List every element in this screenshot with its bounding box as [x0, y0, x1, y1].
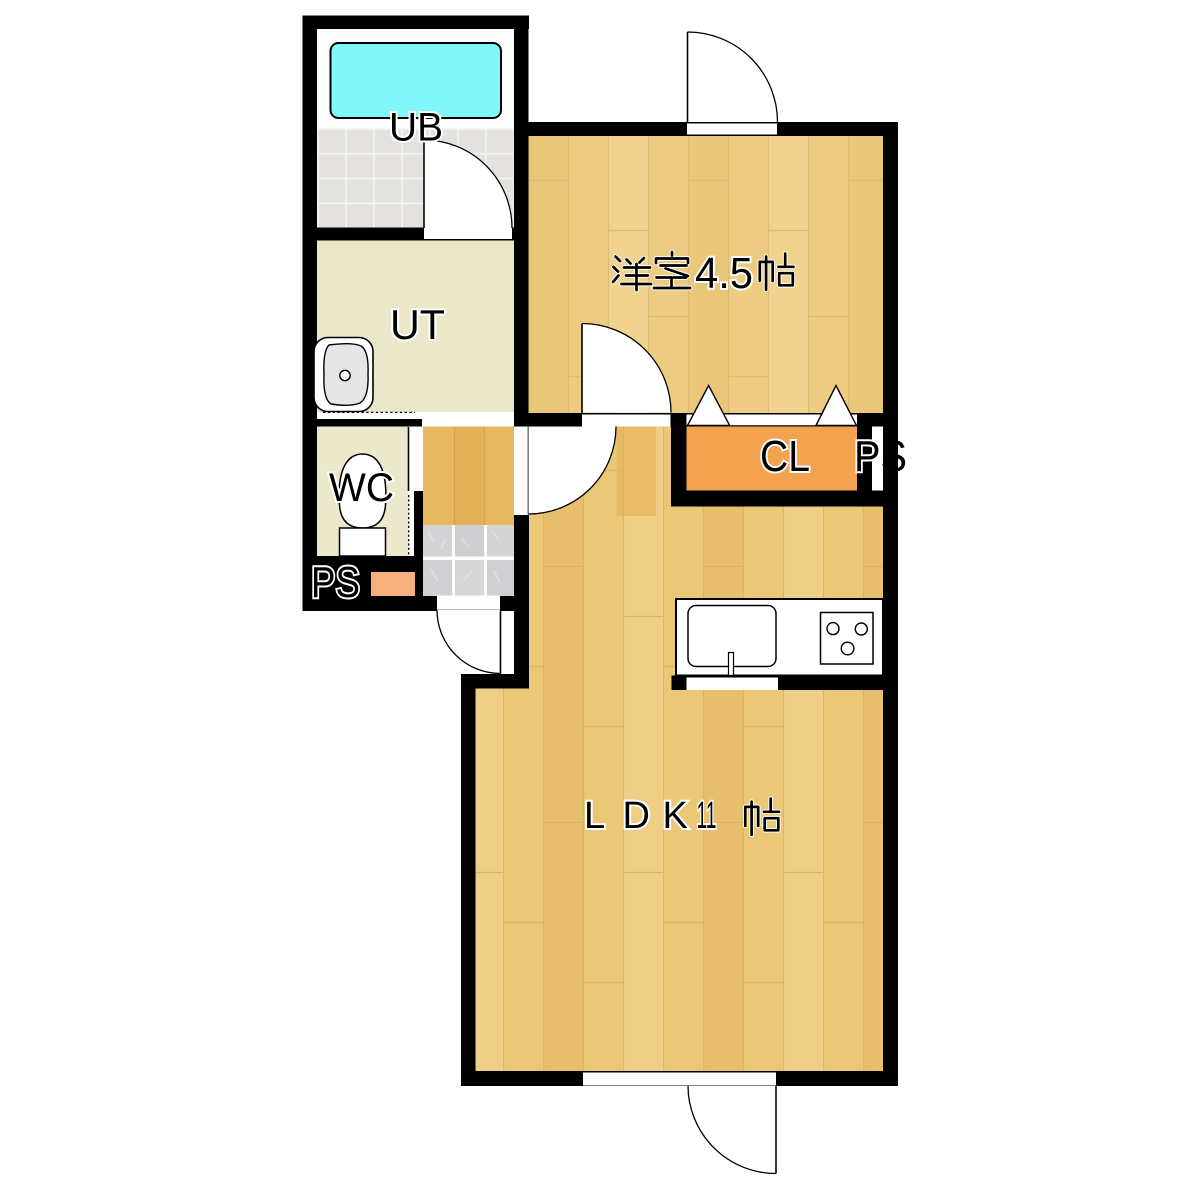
svg-text:K: K: [663, 795, 688, 837]
svg-text:UB: UB: [389, 106, 443, 150]
svg-text:4.5: 4.5: [695, 249, 753, 298]
svg-text:11: 11: [697, 795, 717, 837]
svg-text:PS: PS: [311, 558, 360, 607]
svg-text:UT: UT: [390, 301, 445, 348]
svg-text:PS: PS: [854, 432, 907, 481]
svg-text:WC: WC: [329, 466, 394, 510]
svg-text:L: L: [584, 795, 605, 837]
svg-text:D: D: [623, 795, 650, 837]
svg-text:CL: CL: [760, 432, 810, 481]
